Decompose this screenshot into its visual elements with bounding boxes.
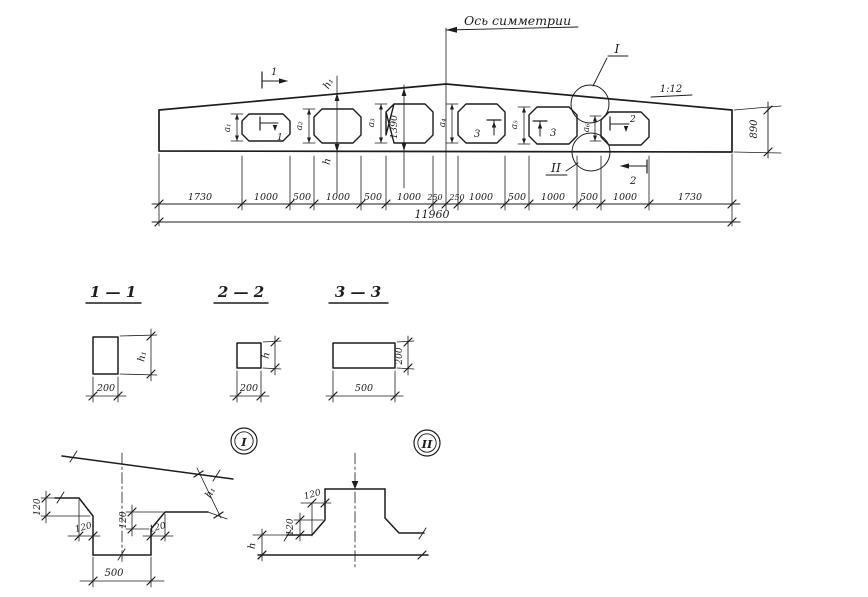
chain-dim: 1000 [541,192,565,203]
a4-label: a₄ [438,118,449,128]
opening-5-number: 3 [550,128,556,139]
chain-dim: 500 [364,192,382,203]
opening-6-number: 2 [629,115,636,125]
a1-label: a₁ [223,123,234,133]
chain-dim: 500 [580,192,598,203]
chain-dim: 500 [293,192,311,203]
section-3-3-height: 200 [395,347,405,365]
chain-dim: 1000 [397,192,421,203]
detail-ii-badge-label: II [421,437,433,451]
chain-dim: 1000 [613,192,637,203]
detail-i-label: I [614,41,621,56]
chain-dim: 1730 [188,192,212,203]
section-1-1-width: 200 [96,383,115,394]
technical-drawing: Ось симметрии 1:12 1 2 1 3 [0,0,868,597]
cut-2-number: 2 [629,176,636,187]
detail-i-dim-120-c: 120 [119,511,129,528]
chain-dim: 500 [508,192,526,203]
total-length-label: 11960 [415,208,450,221]
detail-ii-label: II [550,160,562,175]
section-1-1-height: h₁ [136,350,149,362]
detail-ii-dim-h: h [247,542,259,549]
section-2-2-title: 2 — 2 [217,283,264,301]
detail-i-badge-label: I [240,435,247,449]
dim-1390-label: 1390 [389,115,400,139]
opening-1-number: 1 [277,133,283,143]
section-1-1-title: 1 — 1 [90,283,136,301]
chain-dim: 1000 [469,192,493,203]
drawing-sheet: Ось симметрии 1:12 1 2 1 3 [0,0,868,597]
a3-label: a₃ [367,118,378,128]
detail-ii-dim-120-b: 120 [286,518,296,535]
section-3-3-width: 500 [355,383,373,394]
opening-4-number: 3 [474,129,480,140]
chain-dim: 250 [426,193,442,202]
section-3-3-title: 3 — 3 [335,283,381,301]
chain-dim: 250 [448,193,464,202]
section-2-2-width: 200 [239,383,258,394]
a6-label: a₆ [582,123,593,133]
chain-dim: 1000 [326,192,350,203]
axis-label: Ось симметрии [464,13,571,28]
a5-label: a₅ [510,120,521,130]
detail-i-dim-120-a: 120 [33,498,43,515]
slope-label: 1:12 [660,84,682,95]
chain-dim: 1000 [254,192,278,203]
cut-1-number: 1 [271,67,277,78]
detail-i-dim-500: 500 [104,568,124,579]
dim-890-label: 890 [749,119,760,139]
chain-dim: 1730 [678,192,702,203]
a2-label: a₂ [295,121,306,131]
